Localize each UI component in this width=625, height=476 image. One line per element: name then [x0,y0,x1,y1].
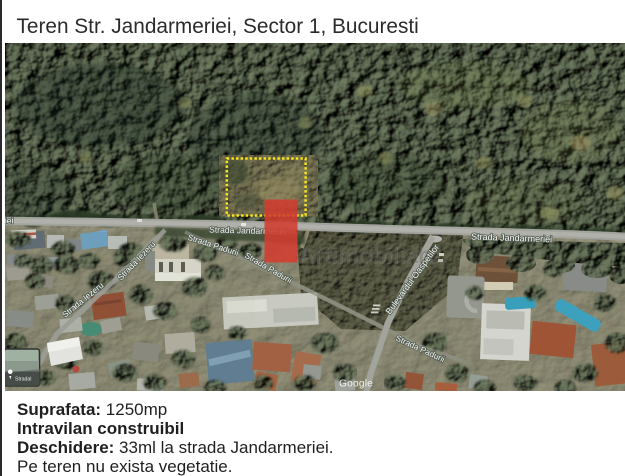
svg-text:riei: riei [5,215,14,225]
svg-text:Google: Google [339,378,373,389]
svg-text:Stradal: Stradal [15,376,31,382]
